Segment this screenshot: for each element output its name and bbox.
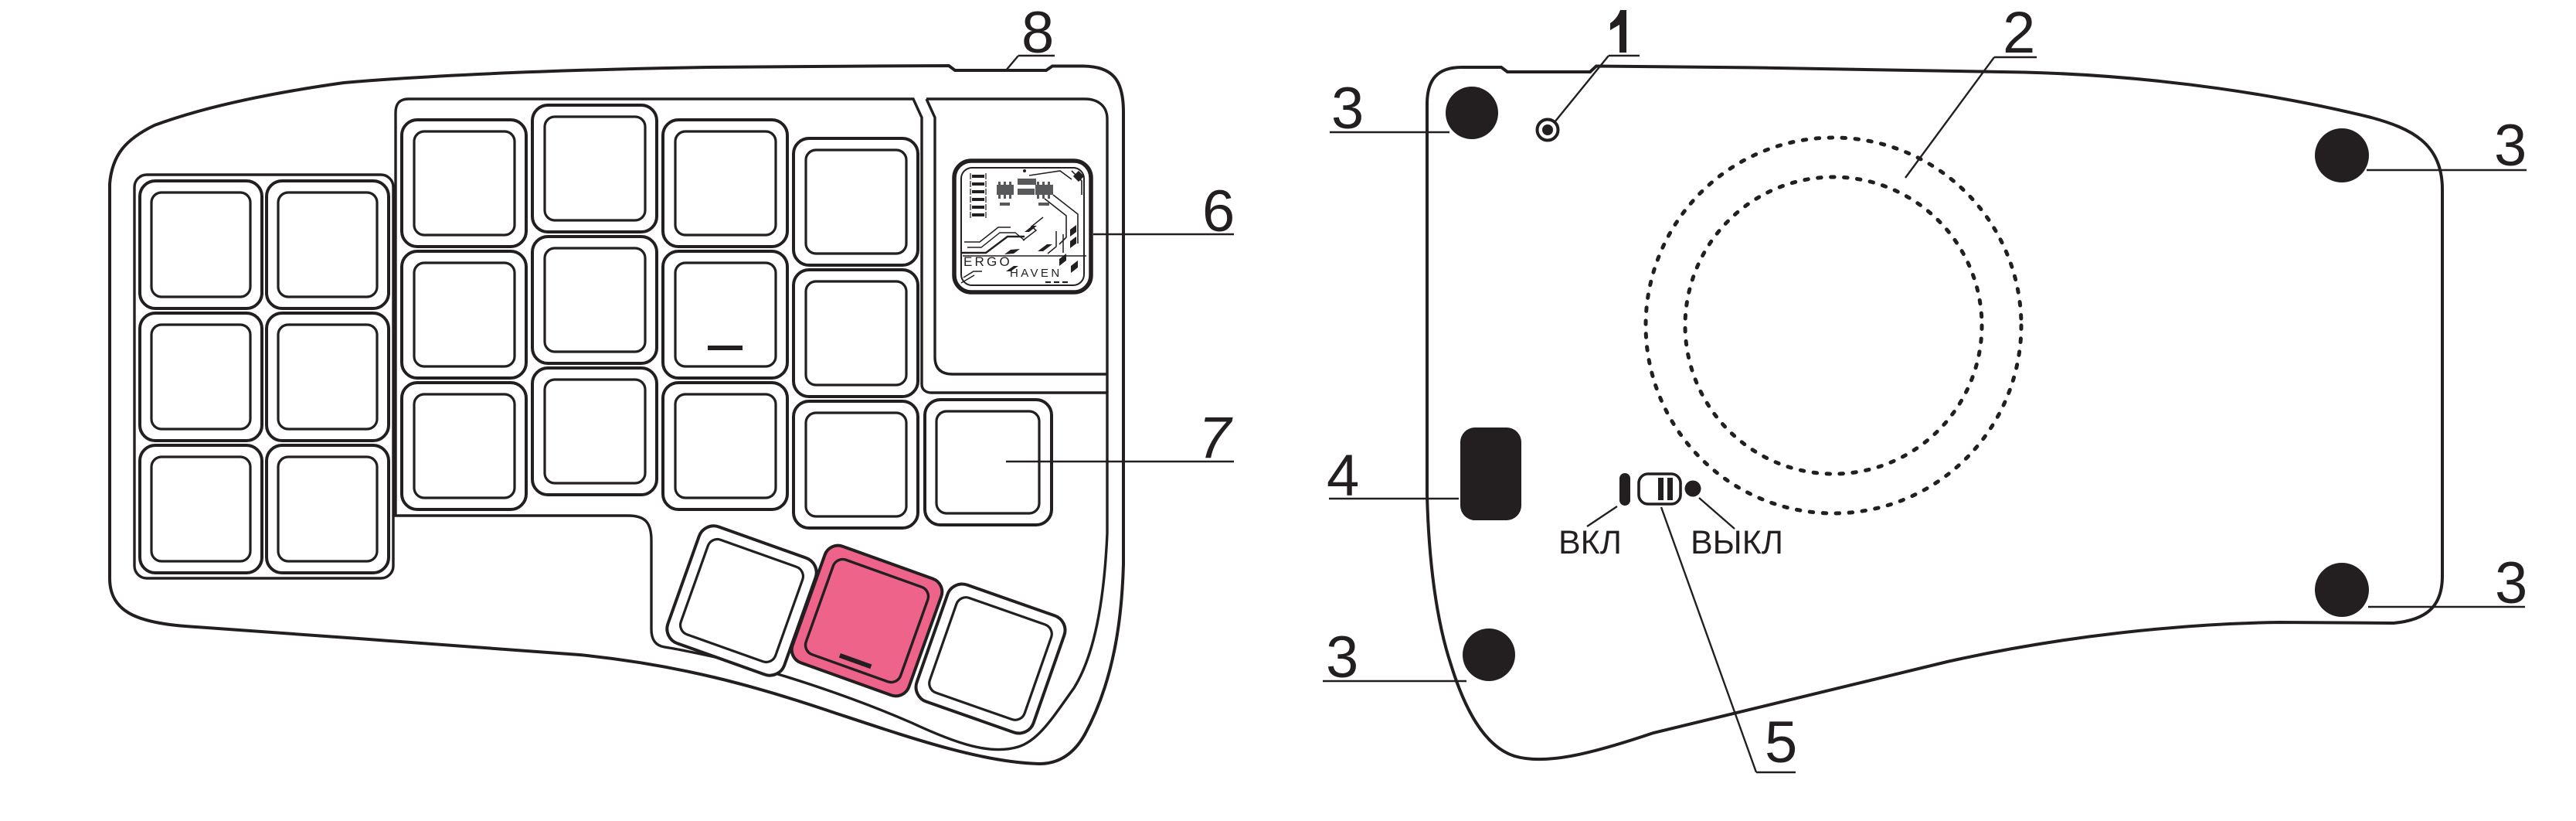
svg-text:ВКЛ: ВКЛ [1558, 524, 1622, 561]
svg-text:5: 5 [1765, 710, 1797, 775]
svg-text:ERGO: ERGO [963, 254, 1012, 269]
svg-text:3: 3 [2494, 113, 2527, 179]
svg-text:HAVEN: HAVEN [1010, 267, 1062, 280]
svg-text:2: 2 [2003, 0, 2035, 66]
svg-text:ВЫКЛ: ВЫКЛ [1691, 524, 1783, 561]
